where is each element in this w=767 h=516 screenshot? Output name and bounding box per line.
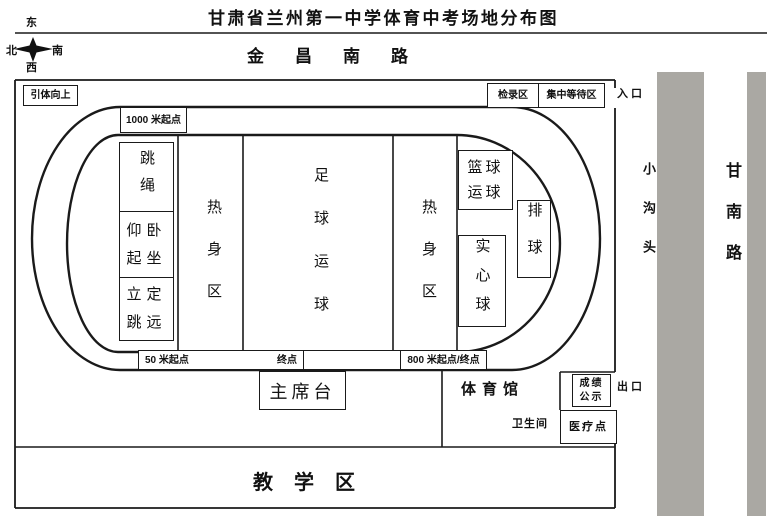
xiaogoutou-label: 小沟头 (639, 162, 658, 279)
compass-south-label: 南 (52, 45, 63, 57)
exit-label: 出 口 (617, 381, 642, 393)
left-event-column: 跳绳 仰卧 起坐 立定 跳远 (119, 142, 174, 341)
rostrum: 主席台 (259, 371, 346, 410)
road-name-jinchang: 金昌南路 (247, 42, 439, 67)
compass-east-label: 东 (26, 17, 37, 29)
score-notice-board: 成绩 公示 (572, 374, 611, 407)
medical-point: 医疗点 (560, 410, 617, 444)
compass-star-icon (14, 37, 53, 62)
sit-ups-zone: 仰卧 起坐 (120, 211, 173, 277)
pull-up-zone: 引体向上 (23, 85, 78, 106)
checkin-waiting-group: 检录区 集中等待区 (487, 83, 605, 108)
track-bottom-strip: 50 米起点 终点 800 米起点/终点 (138, 350, 487, 370)
compass-west-label: 西 (26, 62, 37, 74)
warmup-left-label: 热身区 (203, 199, 224, 325)
gymnasium-label: 体育馆 (461, 378, 524, 399)
teaching-area-label: 教学区 (253, 466, 376, 495)
rope-skipping-label: 跳绳 (136, 150, 157, 204)
check-in-zone: 检录区 (488, 84, 538, 107)
restroom-label: 卫生间 (512, 418, 548, 430)
road-name-gannan: 甘南路 (719, 162, 743, 290)
volleyball-label: 排球 (524, 202, 545, 276)
waiting-zone: 集中等待区 (538, 84, 604, 107)
medicine-ball-zone: 实心球 (458, 235, 506, 327)
football-dribble-label: 足球运球 (310, 167, 331, 339)
start-800m-label: 800 米起点/终点 (400, 351, 486, 369)
start-50m-label: 50 米起点 (145, 355, 189, 366)
page-title: 甘肃省兰州第一中学体育中考场地分布图 (0, 4, 767, 29)
rope-skipping-zone: 跳绳 (120, 143, 173, 211)
football-dribble-zone: 足球运球 (310, 167, 331, 343)
gannan-label: 甘南路 (719, 162, 743, 285)
entrance-label: 入 口 (617, 88, 642, 100)
venue-map: 甘肃省兰州第一中学体育中考场地分布图 东 北 南 西 金昌南路 引体向上 100… (0, 0, 767, 516)
warmup-zone-left: 热身区 (203, 199, 224, 329)
finish-label: 终点 (277, 355, 297, 366)
medicine-ball-label: 实心球 (472, 238, 493, 325)
road-name-xiaogoutou: 小沟头 (639, 162, 658, 282)
road-bar-right (747, 72, 766, 516)
volleyball-zone: 排球 (517, 200, 551, 278)
warmup-zone-right: 热身区 (418, 199, 439, 329)
start-1000m-label: 1000 米起点 (120, 107, 187, 133)
sprint-segment: 50 米起点 终点 (139, 351, 303, 369)
warmup-right-label: 热身区 (418, 199, 439, 325)
compass-north-label: 北 (6, 45, 17, 57)
empty-segment (303, 351, 400, 369)
road-bar-left (657, 72, 704, 516)
standing-long-jump-zone: 立定 跳远 (120, 277, 173, 340)
basketball-dribble-zone: 篮球 运球 (458, 150, 513, 210)
